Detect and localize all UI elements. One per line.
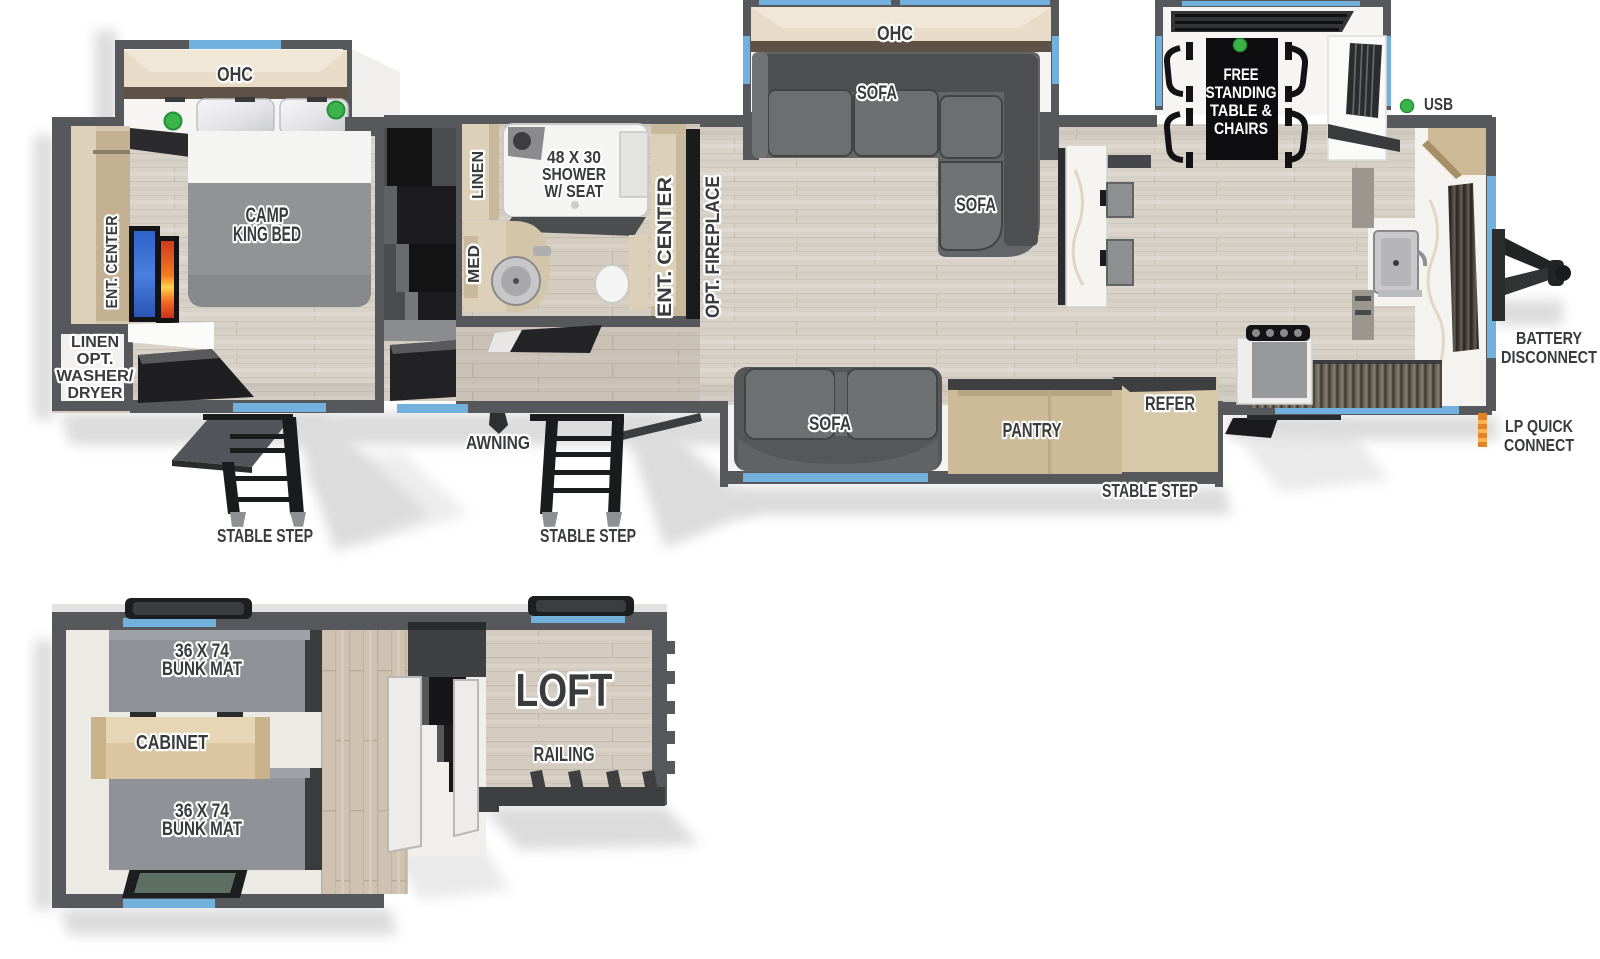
svg-text:ENT. CENTER: ENT. CENTER [104,215,121,308]
svg-text:TABLE &: TABLE & [1210,101,1272,120]
svg-text:BATTERY: BATTERY [1516,328,1582,348]
svg-text:WASHER/: WASHER/ [57,368,135,385]
svg-text:STANDING: STANDING [1206,83,1277,102]
svg-text:DISCONNECT: DISCONNECT [1501,347,1597,367]
svg-text:OPT.: OPT. [77,351,114,368]
svg-text:RAILING: RAILING [534,744,595,766]
svg-text:BUNK MAT: BUNK MAT [162,819,242,840]
svg-text:CABINET: CABINET [136,732,208,754]
svg-text:USB: USB [1424,94,1453,114]
svg-text:OPT. FIREPLACE: OPT. FIREPLACE [703,176,724,318]
svg-text:CONNECT: CONNECT [1504,435,1574,455]
svg-text:AWNING: AWNING [466,433,530,453]
svg-text:OHC: OHC [877,23,913,45]
svg-text:REFER: REFER [1145,394,1195,415]
svg-text:SOFA: SOFA [809,414,851,435]
svg-text:LINEN: LINEN [71,334,119,351]
svg-text:W/ SEAT: W/ SEAT [545,181,604,201]
svg-text:STABLE STEP: STABLE STEP [540,525,636,546]
svg-text:CHAIRS: CHAIRS [1214,119,1268,138]
svg-text:MED: MED [466,245,483,283]
svg-text:SOFA: SOFA [857,83,897,104]
svg-text:DRYER: DRYER [68,385,123,402]
svg-text:LINEN: LINEN [470,151,487,199]
svg-text:KING BED: KING BED [233,223,301,246]
svg-text:LP QUICK: LP QUICK [1505,416,1573,436]
svg-text:OHC: OHC [217,64,253,86]
svg-text:FREE: FREE [1224,65,1259,84]
svg-text:PANTRY: PANTRY [1003,420,1062,442]
svg-text:STABLE STEP: STABLE STEP [1102,480,1198,501]
svg-text:SOFA: SOFA [956,195,996,216]
svg-text:ENT. CENTER: ENT. CENTER [655,177,676,317]
svg-text:STABLE STEP: STABLE STEP [217,525,313,546]
svg-text:LOFT: LOFT [516,664,613,716]
svg-text:BUNK MAT: BUNK MAT [162,659,242,680]
